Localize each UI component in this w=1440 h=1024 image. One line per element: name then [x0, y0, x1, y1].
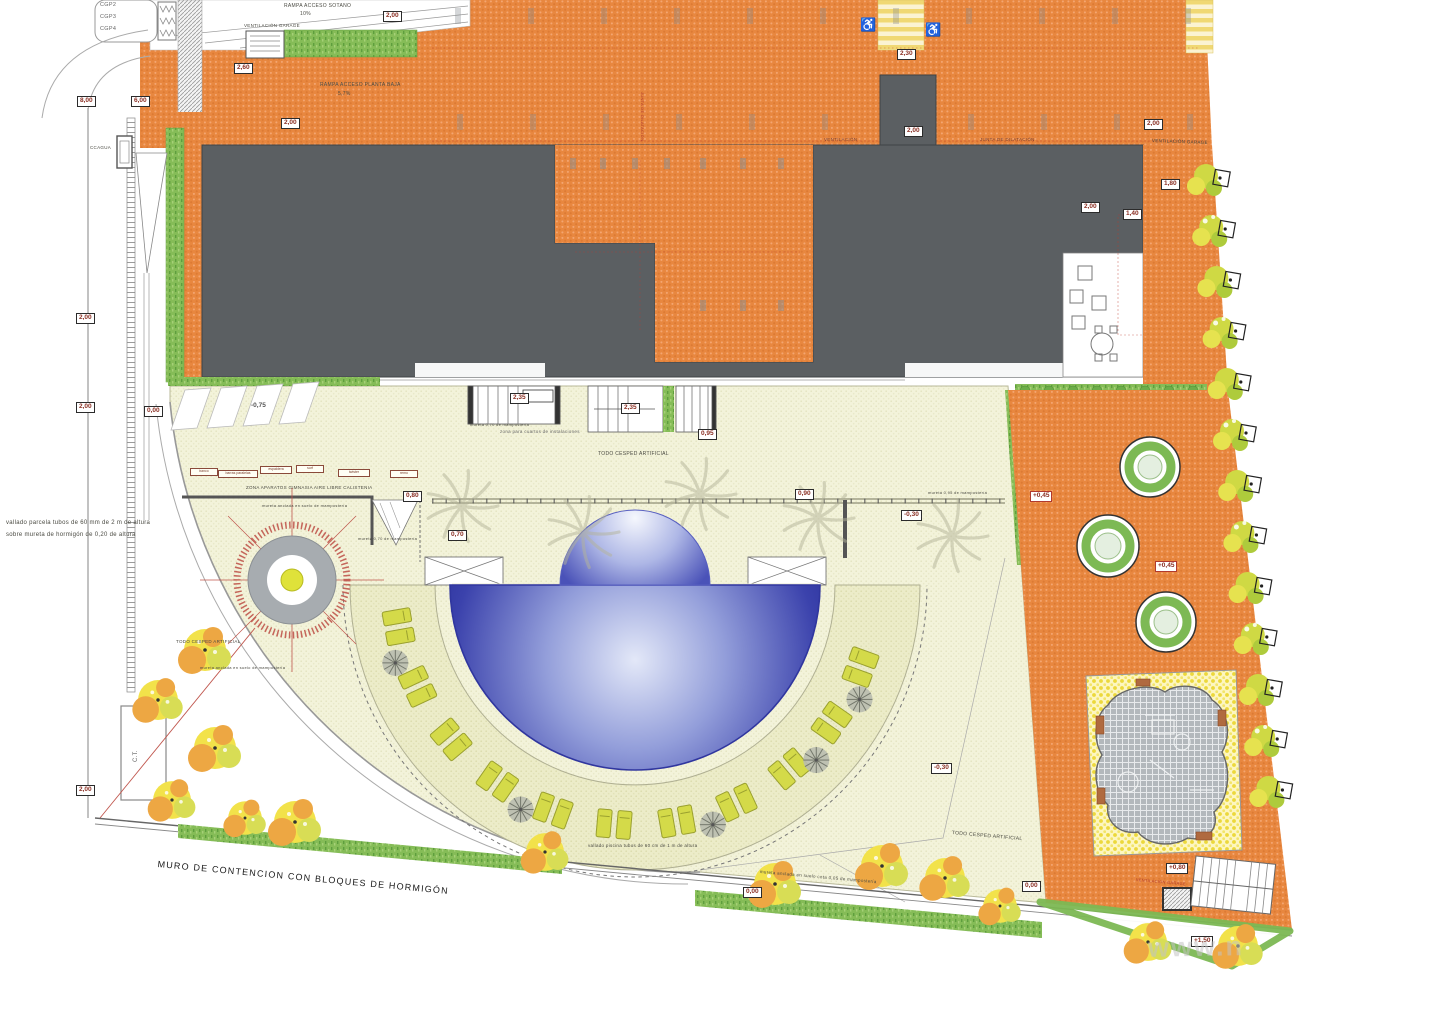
watermark: www.n: [1148, 931, 1245, 964]
garden-tree: [178, 627, 231, 674]
stair-core: [880, 75, 936, 150]
hedge-strip-top: [284, 30, 417, 57]
playground-safety-surface: [1096, 686, 1228, 844]
garden-tree: [188, 725, 241, 772]
east-path: [1008, 390, 1292, 930]
playground: [1086, 670, 1242, 856]
parasol: [508, 797, 534, 823]
garden-tree: [132, 678, 182, 723]
stairs-southeast: [1191, 856, 1276, 914]
hedge-strip-west: [166, 128, 184, 382]
site-plan-canvas: RAMPA ACCESO SOTANO10%VENTILACIÓN GARAGE…: [0, 0, 1440, 1024]
accessible-parking-icon: ♿: [860, 18, 876, 31]
garage-vent-box: [246, 31, 284, 58]
access-road-band: [95, 0, 1213, 148]
garden-tree: [268, 799, 321, 846]
zebra-crossing-left: [878, 0, 924, 50]
utility-meter-cabinet: [95, 0, 157, 42]
service-duct: [178, 0, 202, 118]
parasol: [700, 812, 726, 838]
garage-vent-grille: [1163, 888, 1191, 910]
site-plan-drawing: [0, 0, 1440, 1024]
garden-tree: [223, 800, 265, 838]
patio-terrace: [1063, 253, 1143, 377]
parasol: [803, 747, 829, 773]
parcel-fence: [127, 118, 135, 692]
zebra-crossing-right: [1186, 0, 1213, 53]
accessible-parking-icon: ♿: [925, 23, 941, 36]
parasol: [382, 650, 408, 676]
parasol: [847, 686, 873, 712]
